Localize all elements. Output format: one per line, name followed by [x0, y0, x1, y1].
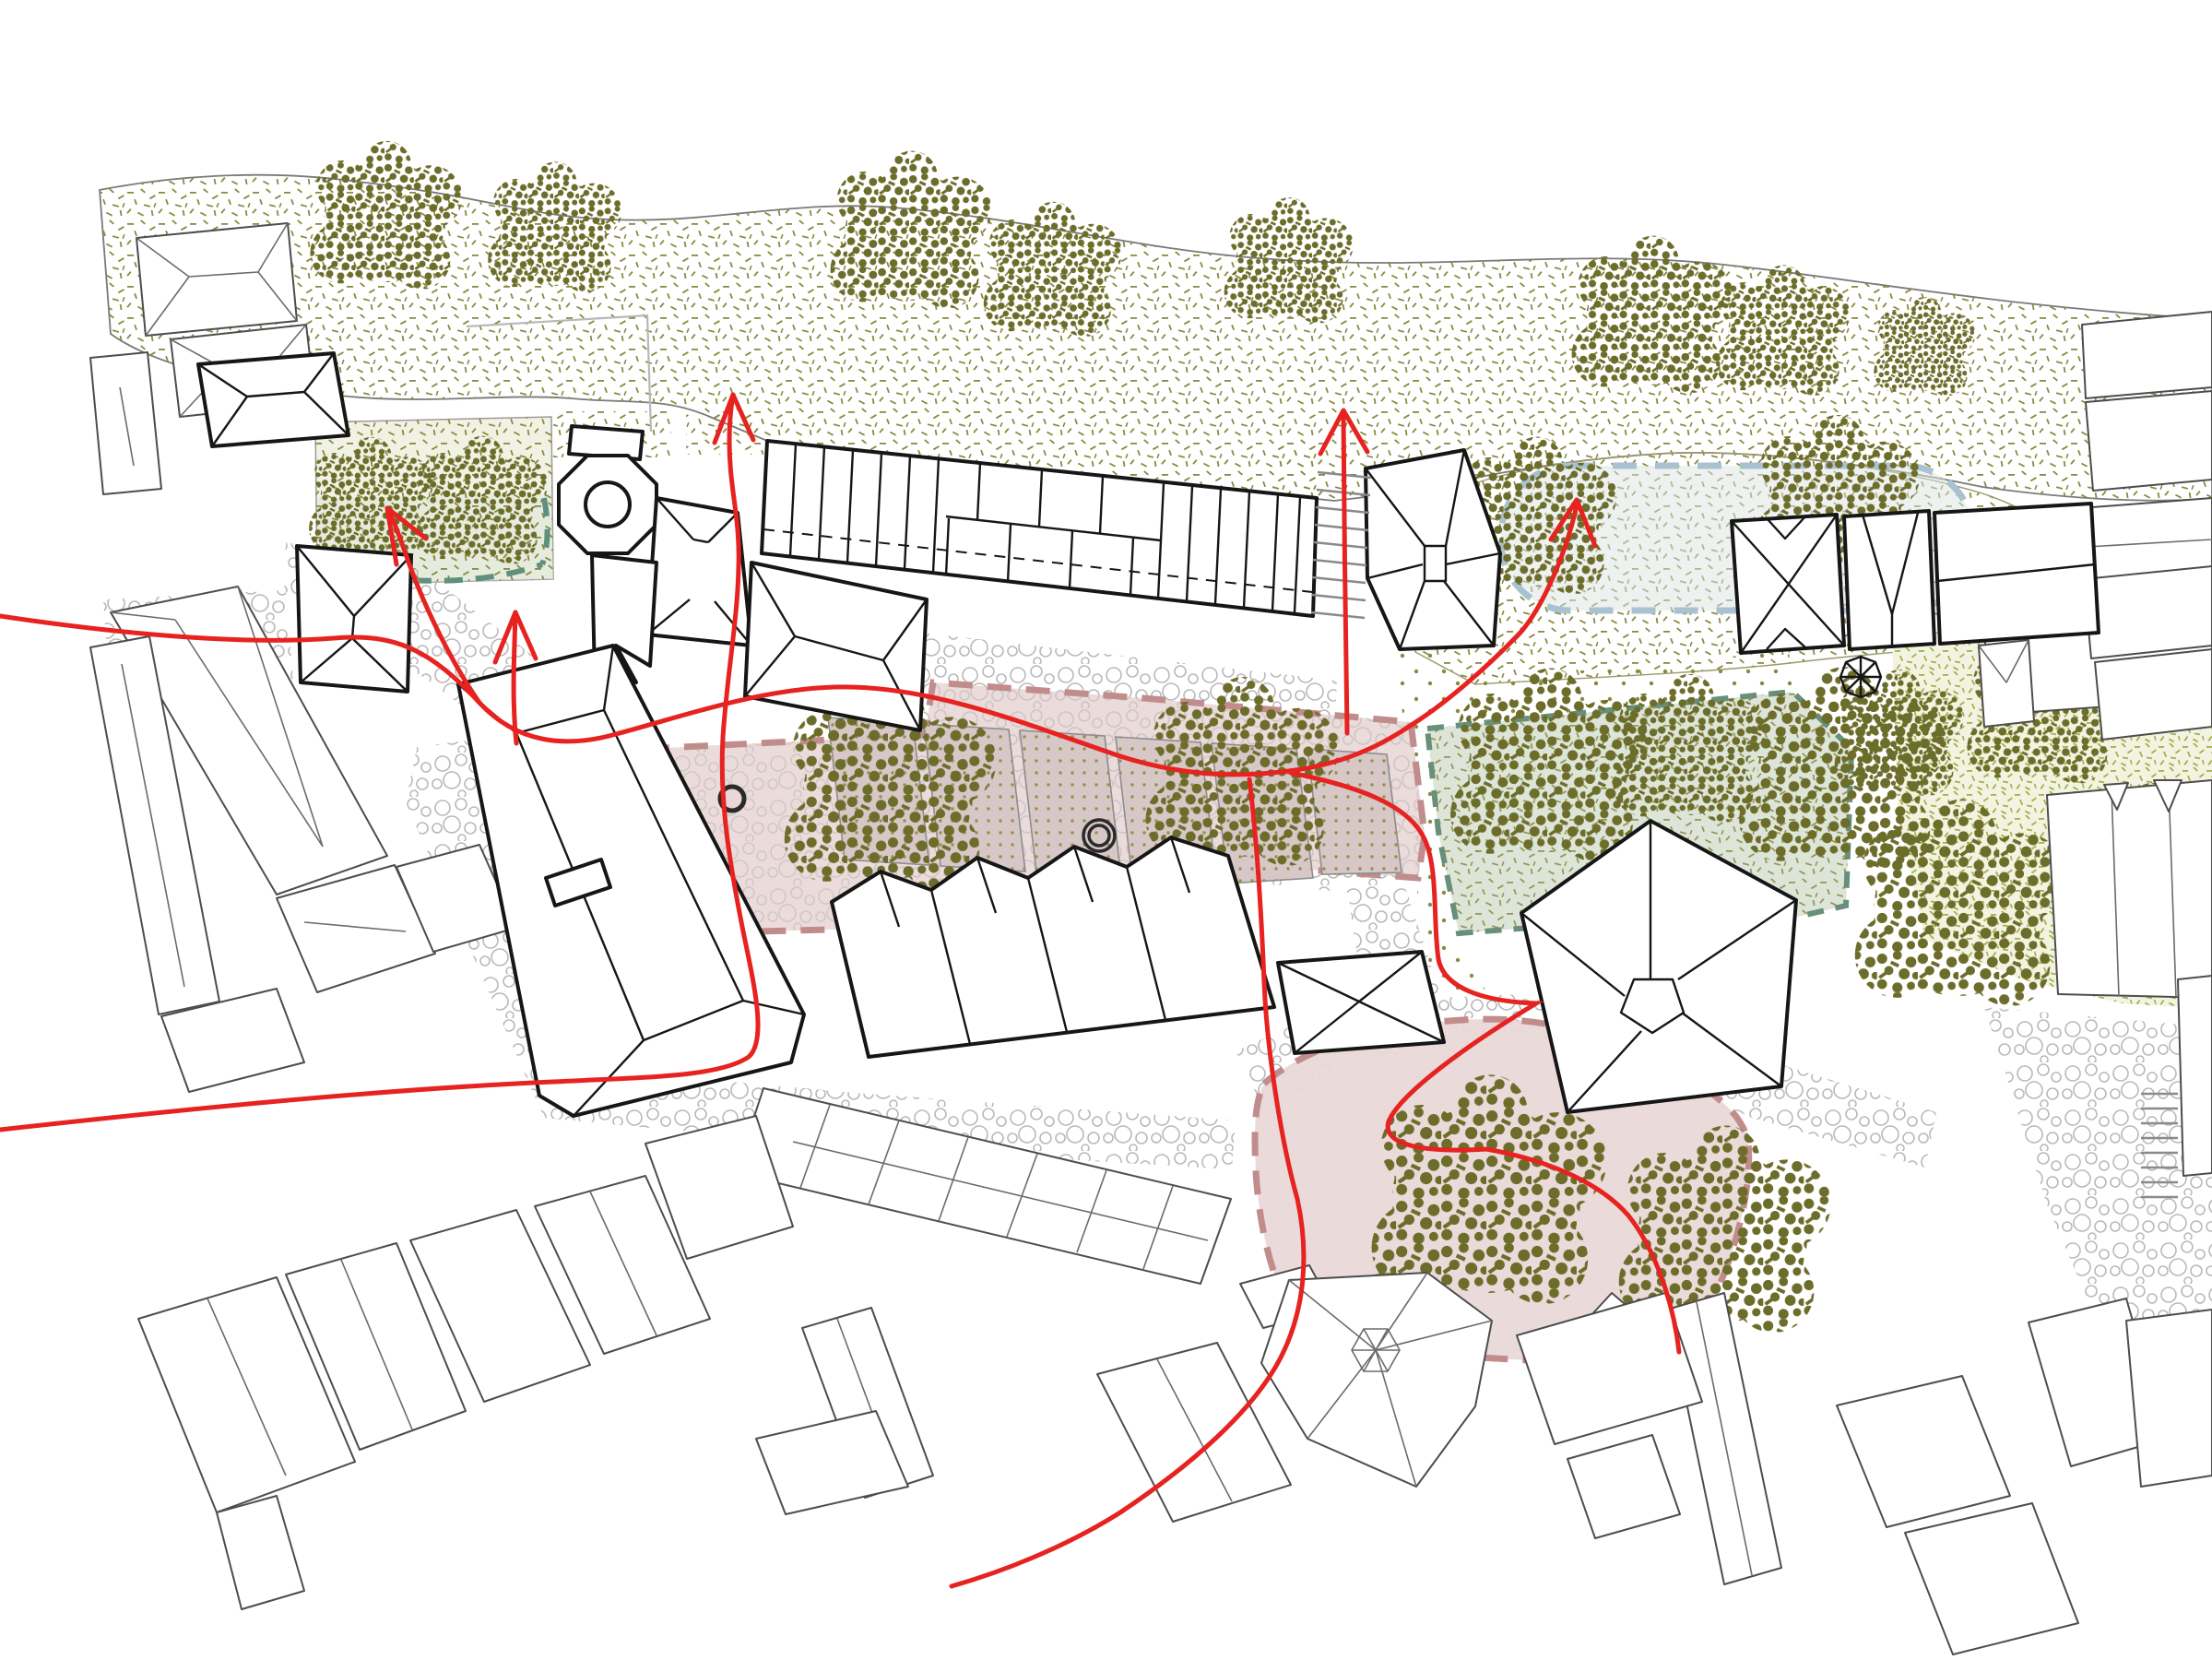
tree: [984, 202, 1122, 337]
tree: [310, 141, 462, 290]
site-plan: [0, 0, 2212, 1660]
verge-patch: [1271, 441, 1320, 494]
tower-spire-circle: [586, 482, 630, 527]
route-to-square: [514, 612, 516, 743]
street-bend-house: [297, 546, 411, 692]
tree: [488, 161, 621, 292]
corner-house: [198, 353, 349, 446]
octagonal-turret: [1840, 657, 1881, 697]
tree: [831, 151, 992, 309]
plan-viewport: [0, 0, 2212, 1660]
square-house-south: [1278, 952, 1444, 1053]
context-row-south: [138, 1088, 1333, 1609]
tree: [1224, 197, 1354, 324]
context-block-southeast: [1517, 1293, 2212, 1654]
tree: [1572, 236, 1733, 394]
